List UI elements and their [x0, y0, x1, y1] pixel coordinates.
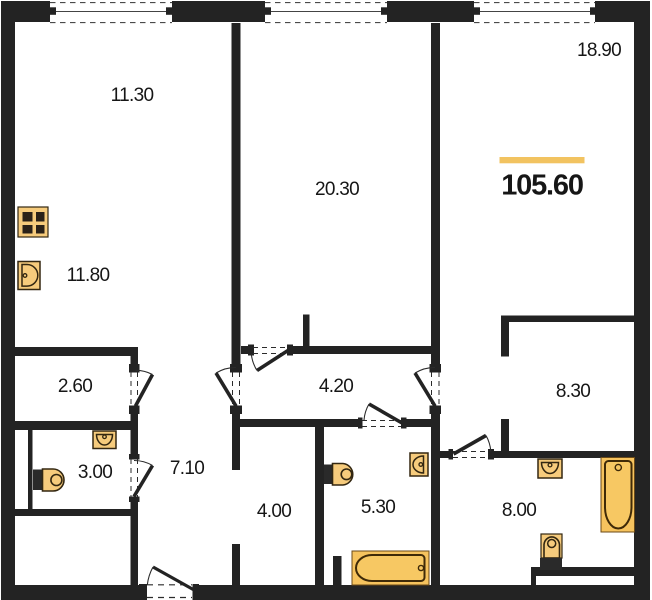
svg-text:20.30: 20.30	[315, 179, 359, 200]
svg-text:11.80: 11.80	[67, 265, 110, 286]
svg-text:105.60: 105.60	[501, 170, 583, 202]
svg-text:2.60: 2.60	[58, 376, 92, 397]
svg-text:8.00: 8.00	[502, 500, 536, 521]
svg-text:5.30: 5.30	[361, 497, 395, 518]
svg-text:4.00: 4.00	[257, 501, 291, 522]
svg-text:4.20: 4.20	[319, 376, 353, 397]
svg-text:7.10: 7.10	[170, 458, 204, 479]
svg-text:18.90: 18.90	[577, 40, 621, 61]
svg-text:11.30: 11.30	[111, 85, 154, 106]
svg-text:3.00: 3.00	[78, 462, 112, 483]
svg-text:8.30: 8.30	[556, 381, 590, 402]
